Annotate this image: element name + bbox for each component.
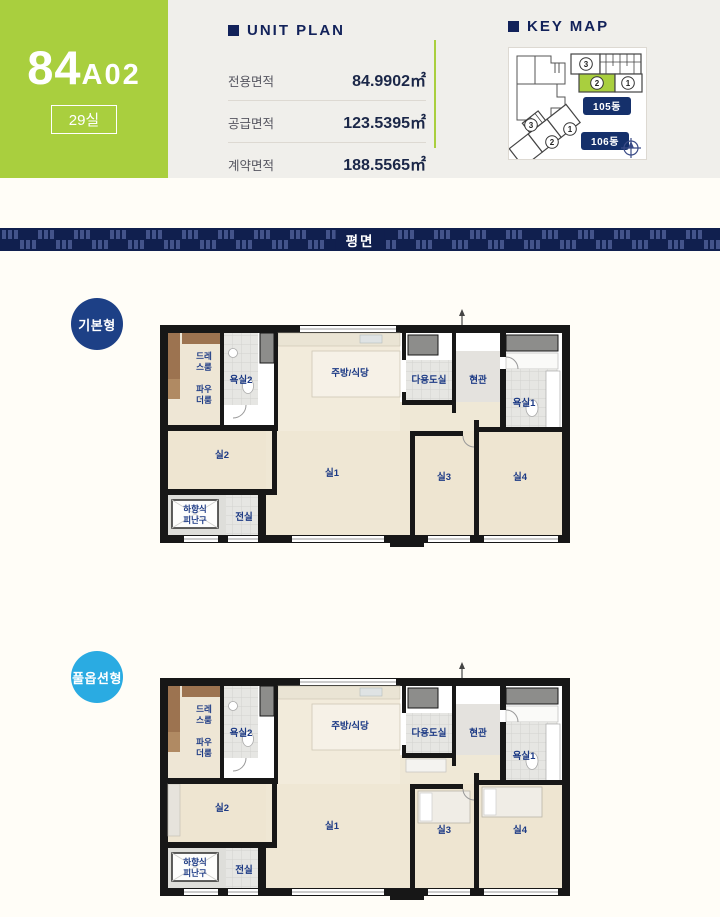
room-label-room1: 실1 bbox=[325, 467, 340, 479]
room-label-room2: 실2 bbox=[215, 449, 229, 461]
table-row: 계약면적 188.5565㎡ bbox=[228, 142, 426, 184]
room-label-hatch-2: 피난구 bbox=[183, 868, 207, 878]
area-row-label: 공급면적 bbox=[228, 113, 274, 132]
key-map-drawing: 3 2 1 105동 bbox=[509, 48, 646, 159]
plan-type-badge-full-option: 풀옵션형 bbox=[71, 651, 123, 703]
section-banner: 평면 bbox=[0, 228, 720, 251]
unit-number: 2 bbox=[595, 79, 600, 88]
room-label-bath2: 욕실2 bbox=[230, 374, 253, 386]
room-label-dress-2: 스룸 bbox=[196, 362, 212, 372]
room-label-bath1: 욕실1 bbox=[513, 397, 536, 409]
key-map-title-text: KEY MAP bbox=[527, 18, 609, 35]
room-label-dress-1: 드레 bbox=[196, 704, 212, 714]
area-row-label: 계약면적 bbox=[228, 155, 274, 174]
room-label-powder-2: 더룸 bbox=[196, 395, 212, 405]
unit-plan-title: UNIT PLAN bbox=[228, 22, 426, 39]
vertical-divider bbox=[434, 40, 436, 148]
room-label-hatch-1: 하향식 bbox=[183, 857, 206, 867]
room-label-room1: 실1 bbox=[325, 820, 340, 832]
area-table: 전용면적 84.9902㎡ 공급면적 123.5395㎡ 계약면적 188.55… bbox=[228, 59, 426, 184]
unit-number: 3 bbox=[584, 60, 589, 69]
floor-plan-full-option: 드레 스룸 파우 더룸 욕실2 주방/식당 다용도실 현관 욕실1 실2 실1 … bbox=[160, 661, 570, 901]
room-label-bath2: 욕실2 bbox=[230, 727, 253, 739]
room-label-dress-1: 드레 bbox=[196, 351, 212, 361]
building-105-label: 105동 bbox=[593, 101, 621, 113]
room-label-room4: 실4 bbox=[513, 471, 528, 483]
room-label-utility: 다용도실 bbox=[412, 374, 447, 386]
unit-type-code: 84A02 bbox=[27, 44, 140, 91]
unit-type-main: 84 bbox=[27, 44, 81, 91]
plan-type-badge-basic: 기본형 bbox=[71, 298, 123, 350]
room-label-room4: 실4 bbox=[513, 824, 528, 836]
room-label-bath1: 욕실1 bbox=[513, 750, 536, 762]
room-label-kitchen: 주방/식당 bbox=[331, 720, 369, 732]
area-row-value: 84.9902㎡ bbox=[352, 67, 426, 91]
key-map-canvas: 3 2 1 105동 bbox=[508, 47, 647, 160]
unit-type-box: 84A02 29실 bbox=[0, 0, 168, 178]
unit-type-sub: A02 bbox=[82, 61, 141, 90]
section-banner-title: 평면 bbox=[336, 230, 385, 250]
area-row-value: 188.5565㎡ bbox=[343, 151, 426, 175]
table-row: 전용면적 84.9902㎡ bbox=[228, 59, 426, 100]
room-label-kitchen: 주방/식당 bbox=[331, 367, 369, 379]
room-label-vestibule: 전실 bbox=[235, 864, 253, 876]
room-label-room2: 실2 bbox=[215, 802, 229, 814]
unit-plan-title-text: UNIT PLAN bbox=[247, 22, 345, 39]
room-label-powder-1: 파우 bbox=[196, 384, 212, 394]
room-label-vestibule: 전실 bbox=[235, 511, 253, 523]
unit-number: 2 bbox=[550, 138, 555, 147]
square-bullet-icon bbox=[508, 21, 519, 32]
table-row: 공급면적 123.5395㎡ bbox=[228, 100, 426, 142]
room-label-powder-2: 더룸 bbox=[196, 748, 212, 758]
room-label-hatch-2: 피난구 bbox=[183, 515, 207, 525]
room-label-entrance: 현관 bbox=[469, 374, 487, 386]
building-105: 3 2 1 105동 bbox=[571, 54, 642, 115]
unit-plan-section: UNIT PLAN 전용면적 84.9902㎡ 공급면적 123.5395㎡ 계… bbox=[228, 22, 426, 184]
room-label-hatch-1: 하향식 bbox=[183, 504, 206, 514]
unit-count-badge: 29실 bbox=[51, 105, 118, 134]
building-106-label: 106동 bbox=[591, 136, 619, 148]
unit-number: 1 bbox=[626, 79, 631, 88]
floor-plan-basic: 드레 스룸 파우 더룸 욕실2 주방/식당 다용도실 현관 욕실1 실2 실1 … bbox=[160, 308, 570, 548]
square-bullet-icon bbox=[228, 25, 239, 36]
unit-number: 1 bbox=[568, 125, 573, 134]
room-label-utility: 다용도실 bbox=[412, 727, 447, 739]
area-row-label: 전용면적 bbox=[228, 71, 274, 90]
room-label-dress-2: 스룸 bbox=[196, 715, 212, 725]
key-map-section: KEY MAP bbox=[508, 18, 647, 160]
room-label-room3: 실3 bbox=[437, 824, 451, 836]
unit-plan-page: 84A02 29실 UNIT PLAN 전용면적 84.9902㎡ 공급면적 1… bbox=[0, 0, 720, 917]
key-map-title: KEY MAP bbox=[508, 18, 647, 35]
area-row-value: 123.5395㎡ bbox=[343, 109, 426, 133]
unit-number: 3 bbox=[529, 121, 534, 130]
room-label-entrance: 현관 bbox=[469, 727, 487, 739]
room-label-powder-1: 파우 bbox=[196, 737, 212, 747]
room-label-room3: 실3 bbox=[437, 471, 451, 483]
